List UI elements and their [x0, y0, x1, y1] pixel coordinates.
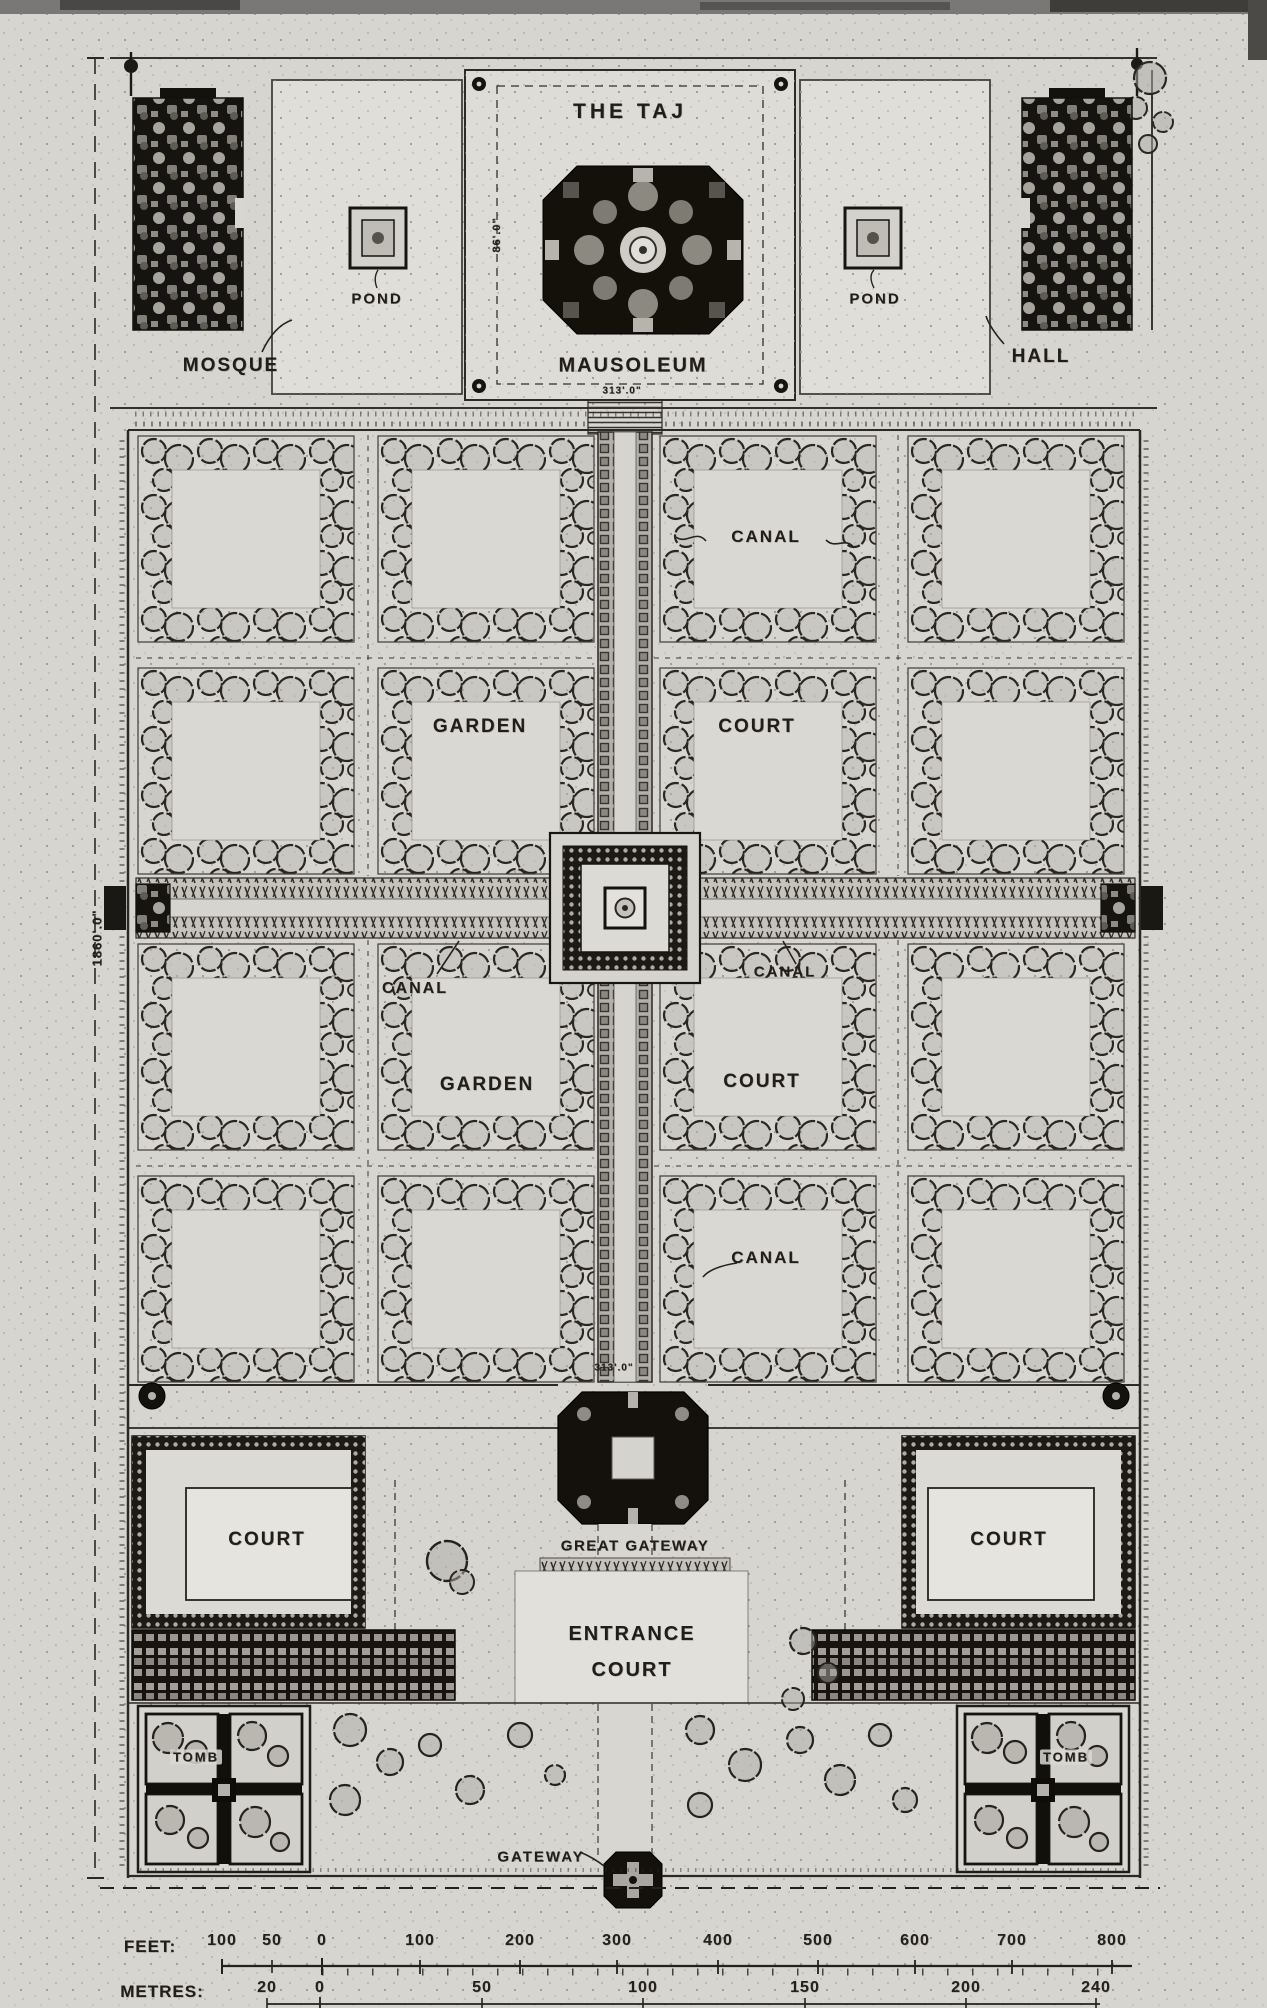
mosque-building [133, 88, 245, 330]
tomb-west-label: TOMB [170, 1750, 222, 1765]
platform-dimension: 86'.0" [491, 217, 503, 252]
bazaar-arcade-east [812, 1630, 1135, 1700]
terrace-steps [588, 400, 662, 434]
canal-east-label: CANAL [754, 964, 817, 981]
feet-mark: 200 [505, 1932, 535, 1950]
bazaar-arcade-west [132, 1630, 455, 1700]
wall-pavilion-east [1101, 884, 1135, 932]
court-east-label: COURT [970, 1529, 1048, 1551]
garden-lower-label: GARDEN [440, 1074, 534, 1096]
central-pool-platform [550, 833, 700, 983]
metres-mark: 50 [472, 1979, 492, 1997]
mausoleum-plan [543, 166, 743, 334]
metres-mark: 0 [315, 1979, 325, 1997]
court-west-label: COURT [228, 1529, 306, 1551]
feet-mark: 50 [262, 1932, 282, 1950]
metres-mark: 20 [257, 1979, 277, 1997]
garden-upper-label: GARDEN [433, 716, 527, 738]
hall-building [1020, 88, 1132, 330]
metres-mark: 100 [628, 1979, 658, 1997]
mausoleum-base-dimension: 313'.0" [602, 386, 641, 397]
pond-enclosure-right [800, 80, 990, 394]
court-lower-label: COURT [723, 1071, 801, 1093]
plan-drawing [0, 0, 1267, 2008]
wall-pavilion-west [136, 884, 170, 932]
total-length-dimension: 1860'.0" [90, 909, 105, 966]
outer-gate-east [1141, 886, 1163, 930]
feet-mark: 0 [317, 1932, 327, 1950]
mosque-label: MOSQUE [183, 355, 279, 377]
court-upper-label: COURT [718, 716, 796, 738]
feet-mark: 100 [405, 1932, 435, 1950]
pond-left-label: POND [351, 291, 402, 308]
canal-top-label: CANAL [731, 527, 801, 547]
entrance-court-line1: ENTRANCE [568, 1616, 695, 1652]
feet-mark: 800 [1097, 1932, 1127, 1950]
south-gateway-label: GATEWAY [497, 1849, 584, 1866]
pond-enclosure-left [272, 80, 462, 394]
hall-label: HALL [1012, 346, 1071, 368]
tomb-east-label: TOMB [1040, 1750, 1092, 1765]
tomb-garden-east [957, 1706, 1129, 1872]
entrance-court-line2: COURT [568, 1652, 695, 1688]
feet-mark: 600 [900, 1932, 930, 1950]
canal-west-label: CANAL [382, 980, 448, 998]
great-gateway-label: GREAT GATEWAY [561, 1538, 709, 1555]
gateway-width-dimension: 313'.0" [594, 1363, 633, 1374]
outer-gate-west [104, 886, 126, 930]
great-gateway-block [558, 1392, 708, 1524]
south-gateway-block [604, 1852, 662, 1908]
feet-mark: 500 [803, 1932, 833, 1950]
title-the-taj: THE TAJ [573, 100, 687, 124]
gateway-ornament-strip [540, 1558, 730, 1571]
pond-right-label: POND [849, 291, 900, 308]
mausoleum-label: MAUSOLEUM [558, 355, 707, 378]
metres-scale-label: METRES: [120, 1982, 204, 2002]
entrance-court-label: ENTRANCE COURT [568, 1616, 695, 1688]
feet-mark: 700 [997, 1932, 1027, 1950]
canal-south-label: CANAL [731, 1248, 801, 1268]
taj-mahal-plan-scan: THE TAJ MAUSOLEUM 86'.0" 313'.0" MOSQUE … [0, 0, 1267, 2008]
feet-mark: 300 [602, 1932, 632, 1950]
metres-mark: 240 [1081, 1979, 1111, 1997]
feet-mark: 400 [703, 1932, 733, 1950]
metres-mark: 150 [790, 1979, 820, 1997]
feet-scale-label: FEET: [124, 1937, 176, 1957]
feet-mark: 100 [207, 1932, 237, 1950]
metres-mark: 200 [951, 1979, 981, 1997]
tomb-garden-west [138, 1706, 310, 1872]
